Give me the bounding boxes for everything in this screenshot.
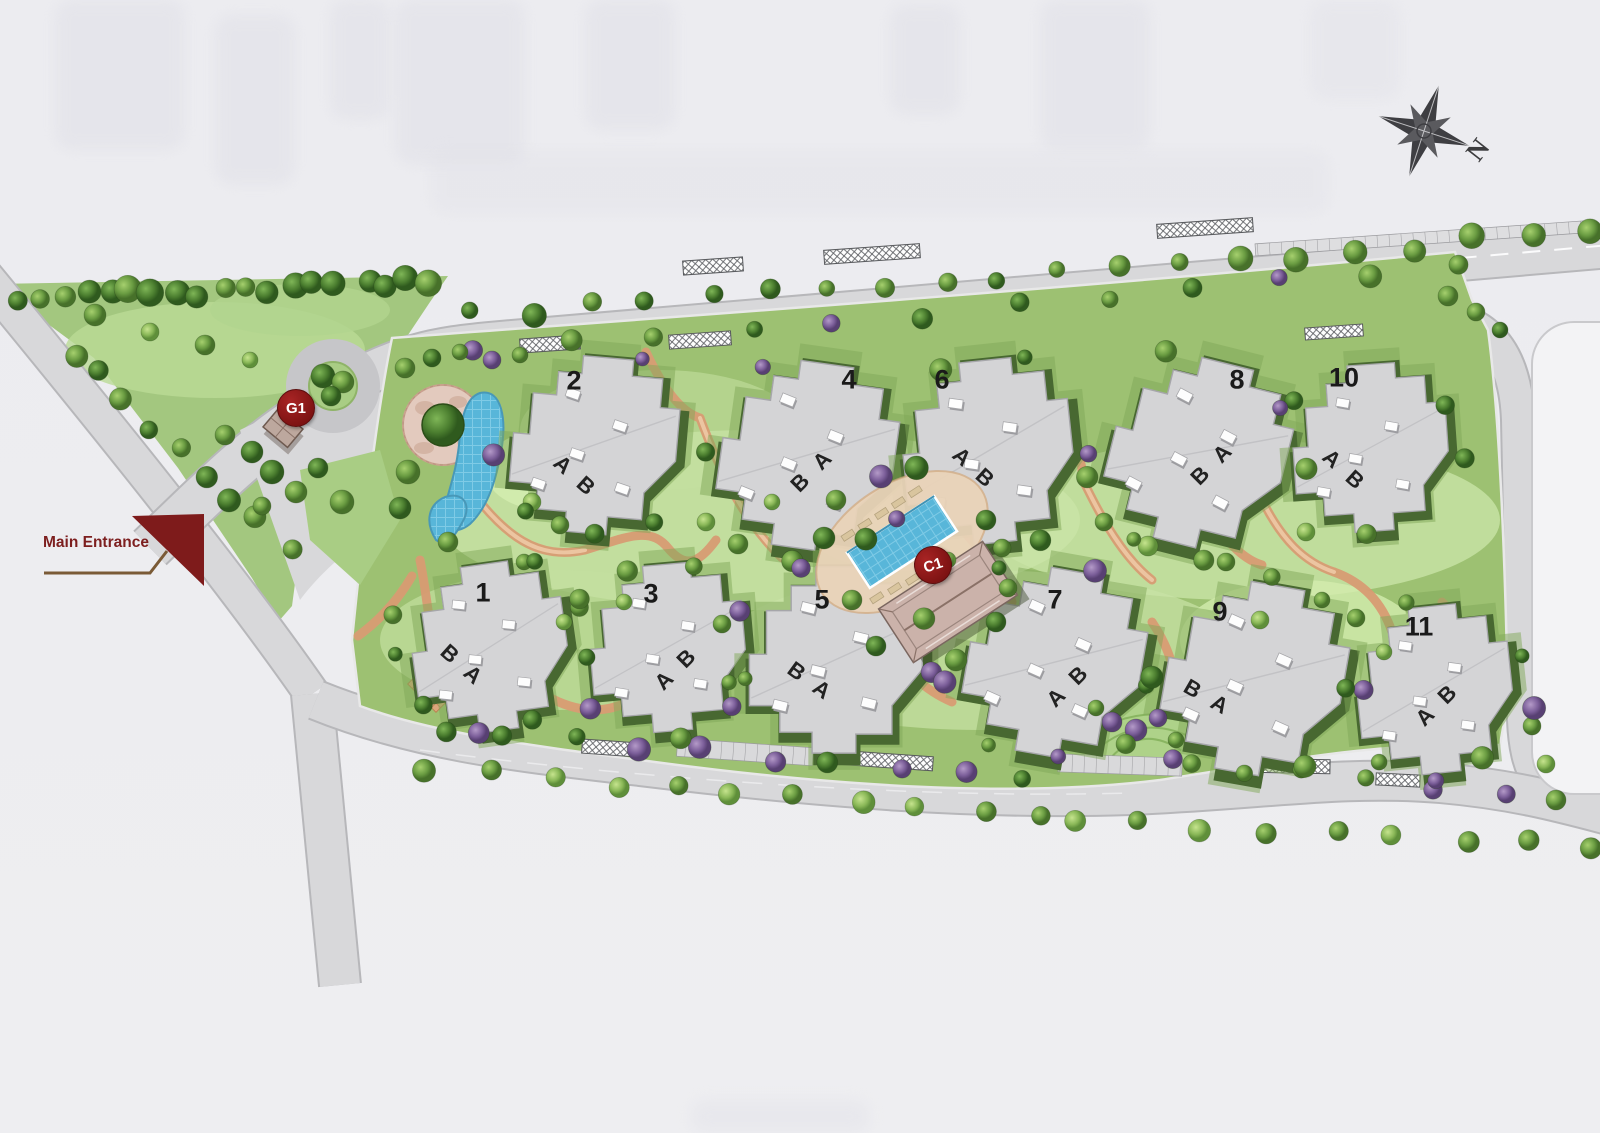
tree-icon [1459,223,1485,249]
tree-icon [728,534,748,554]
tree-icon [1284,247,1309,272]
tree-icon [517,503,533,519]
tree-icon [1404,240,1426,262]
tree-icon [1273,400,1288,415]
tree-icon [1358,770,1375,787]
tree-icon [826,490,846,510]
tree-icon [1357,524,1376,543]
tree-icon [842,590,862,610]
tree-icon [1428,773,1444,789]
tree-icon [389,497,411,519]
tree-icon [308,458,328,478]
tree-icon [1076,466,1098,488]
tree-icon [988,272,1005,289]
tree-icon [646,514,663,531]
tree-icon [616,594,632,610]
tree-icon [412,759,435,782]
tree-icon [1228,246,1253,271]
tree-icon [813,527,835,549]
tree-icon [765,752,786,773]
tree-icon [1458,831,1479,852]
tree-icon [670,728,691,749]
tree-icon [217,489,240,512]
tree-icon [253,497,271,515]
tree-icon [976,510,996,530]
tree-icon [570,589,590,609]
tree-icon [940,552,956,568]
tree-icon [1523,696,1546,719]
tree-icon [1149,709,1167,727]
tree-icon [1127,532,1141,546]
tree-icon [1578,219,1600,244]
tree-icon [1359,265,1382,288]
tree-icon [1580,838,1600,859]
tree-icon [1065,810,1086,831]
tree-icon [747,321,763,337]
tree-icon [1343,240,1367,264]
tree-icon [423,349,441,367]
tree-icon [764,494,780,510]
tree-icon [580,698,601,719]
tree-icon [393,265,418,290]
tree-icon [527,553,543,569]
tree-icon [685,558,702,575]
tree-icon [1116,734,1136,754]
tree-icon [992,561,1007,576]
tree-icon [1522,223,1546,247]
tree-icon [414,696,432,714]
tree-icon [283,540,302,559]
tree-icon [913,608,935,630]
tree-icon [976,802,996,822]
tree-icon [933,671,956,694]
tree-icon [855,528,877,550]
tree-icon [1518,830,1539,851]
tree-icon [986,612,1006,632]
tree-icon [722,697,741,716]
tree-icon [1017,350,1032,365]
tree-icon [1294,755,1316,777]
tree-icon [635,352,649,366]
tree-icon [1515,649,1529,663]
tree-icon [888,511,905,528]
tree-icon [242,352,258,368]
tree-icon [492,726,512,746]
tree-icon [1141,666,1163,688]
tree-icon [8,291,27,310]
tree-icon [1095,513,1113,531]
tree-icon [468,722,489,743]
tree-icon [1183,278,1202,297]
tree-icon [311,364,335,388]
tree-icon [579,649,596,666]
tree-icon [438,532,458,552]
site-plan-canvas [0,0,1600,1133]
tree-icon [512,347,528,363]
tree-icon [1314,592,1330,608]
tree-icon [1263,569,1280,586]
tree-icon [1376,644,1392,660]
tree-icon [1183,755,1201,773]
tree-icon [1083,559,1106,582]
tree-icon [644,328,663,347]
tree-icon [241,441,263,463]
tree-icon [930,359,952,381]
tree-icon [1455,449,1474,468]
tree-icon [782,784,802,804]
tree-icon [482,444,504,466]
tree-icon [195,335,215,355]
tree-icon [285,481,307,503]
tree-icon [1010,293,1029,312]
tree-icon [583,292,602,311]
tree-icon [196,466,218,488]
tree-icon [822,314,840,332]
tree-icon [1014,770,1031,787]
tree-icon [236,278,255,297]
tree-icon [31,290,50,309]
tree-icon [1194,550,1214,570]
tree-icon [869,465,892,488]
tree-icon [688,736,711,759]
tree-icon [738,672,752,686]
tree-icon [1296,458,1318,480]
tree-icon [1109,255,1130,276]
main-entrance-arrow-icon [44,514,204,586]
tree-icon [55,286,76,307]
tree-icon [912,308,933,329]
tree-icon [1217,553,1235,571]
tree-icon [172,439,191,458]
tree-icon [1347,609,1365,627]
tree-icon [321,386,341,406]
tree-icon [1256,823,1277,844]
tree-icon [215,425,235,445]
tree-icon [697,513,715,531]
tree-icon [186,286,208,308]
tree-icon [585,524,604,543]
tree-icon [982,738,996,752]
tree-icon [1497,785,1515,803]
tree-icon [84,304,106,326]
tree-icon [140,421,158,439]
tree-icon [1251,611,1269,629]
tree-icon [1354,680,1373,699]
tree-icon [956,761,977,782]
site-plan: 1 2 3 4 5 6 7 8 9 10 11 B A A B A B B A … [0,0,1600,1133]
tree-icon [852,791,875,814]
tree-icon [1436,396,1455,415]
tree-icon [1080,445,1097,462]
tree-icon [760,279,780,299]
tree-icon [609,777,629,797]
tree-icon [561,330,582,351]
tree-icon [1471,746,1494,769]
tree-icon [1438,286,1458,306]
tree-icon [718,783,740,805]
tree-icon [722,675,737,690]
tree-icon [1163,750,1182,769]
tree-icon [461,302,478,319]
tree-icon [945,649,967,671]
tree-icon [866,636,886,656]
tree-icon [1032,806,1051,825]
tree-icon [415,270,442,297]
adjacent-plot [1532,322,1600,794]
tree-icon [136,279,164,307]
tree-icon [1546,790,1566,810]
tree-icon [388,647,402,661]
tree-icon [1371,754,1387,770]
tree-icon [1449,255,1468,274]
tree-icon [1051,749,1066,764]
tree-icon [755,359,771,375]
tree-icon [730,601,750,621]
tree-icon [635,292,653,310]
tree-icon [617,561,638,582]
tree-icon [792,559,811,578]
tree-icon [483,351,501,369]
tree-icon [546,768,565,787]
tree-icon [523,710,542,729]
tree-icon [819,280,835,296]
tree-icon [1467,303,1485,321]
tree-icon [875,278,894,297]
tree-icon [1171,253,1188,270]
tree-icon [66,345,88,367]
tree-icon [1030,530,1051,551]
tree-icon [1337,679,1355,697]
tree-icon [522,303,546,327]
tree-icon [260,460,284,484]
tree-icon [999,579,1017,597]
tree-icon [905,797,924,816]
tree-icon [78,280,101,303]
tree-icon [384,606,402,624]
tree-icon [109,388,131,410]
tree-icon [627,738,651,762]
tree-icon [1155,340,1177,362]
tree-icon [569,728,586,745]
tree-icon [255,281,278,304]
tree-icon [1168,732,1184,748]
tree-icon [893,760,911,778]
tree-icon [939,273,958,292]
tree-icon [1128,811,1147,830]
tree-icon [216,278,236,298]
tree-icon [993,539,1011,557]
tree-icon [436,722,456,742]
tree-icon [1297,523,1315,541]
tree-icon [320,271,345,296]
tree-icon [452,344,468,360]
tree-icon [1102,291,1119,308]
tree-icon [670,776,689,795]
tree-icon [330,490,354,514]
tree-icon [1492,322,1508,338]
tree-icon [396,460,420,484]
tree-icon [556,614,572,630]
tree-icon [482,760,502,780]
tree-icon [1399,595,1415,611]
tree-icon [395,358,415,378]
tree-icon [706,285,724,303]
tree-icon [300,271,323,294]
tree-icon [1271,269,1287,285]
tree-icon [1537,755,1555,773]
tree-icon [1102,712,1122,732]
tree-icon [905,456,929,480]
tree-icon [696,443,715,462]
tree-icon [1188,819,1211,842]
tree-icon [817,752,838,773]
tree-icon [141,323,159,341]
tree-icon [1049,261,1065,277]
compass-rose-icon [1364,71,1485,192]
tree-icon [1329,821,1348,840]
tree-icon [713,615,731,633]
tree-icon [88,360,108,380]
tree-icon [1381,825,1401,845]
tree-icon [1236,765,1253,782]
tree-icon [551,516,569,534]
tree-icon [1088,700,1104,716]
